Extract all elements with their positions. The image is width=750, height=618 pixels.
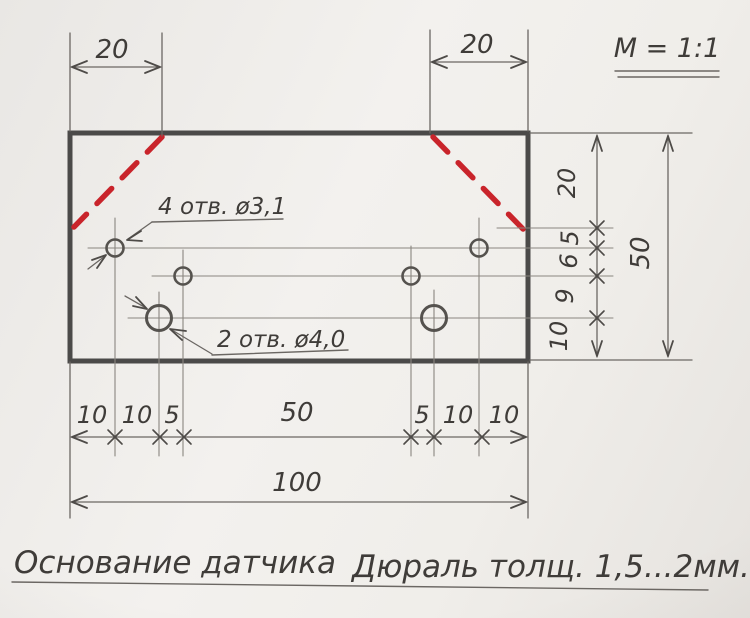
corner-cut-right [433,137,523,229]
dim-value: 100 [272,468,322,498]
dim-value: 20 [95,35,128,65]
dim-value: 20 [460,30,493,60]
leader-arrowhead [127,231,142,241]
dim-value: 5 [164,401,179,429]
dim-value: 20 [553,168,581,199]
title-block: Основание датчика Дюраль толщ. 1,5...2мм… [12,545,750,590]
dim-value: 10 [545,321,573,352]
dim-value: 10 [443,401,474,429]
dim-value: 5 [556,230,584,245]
dim-value: 50 [626,236,656,269]
callout-text: 4 отв. ø3,1 [158,194,286,220]
dim-value: 9 [551,288,579,303]
dim-value: 50 [280,398,313,428]
leader-tail-arrowhead [133,297,147,309]
dim-value: 10 [122,401,153,429]
scale-note: M = 1:1 [614,33,721,77]
leader-arrowhead [170,329,186,340]
dim-value: 10 [77,401,108,429]
dim-value: 10 [489,401,520,429]
technical-drawing: 20 20 M = 1:1 20 5 6 9 10 50 [0,0,750,618]
corner-cut-marks [74,137,523,229]
dim-value: 6 [555,253,583,268]
dim-right-total: 50 [626,135,673,357]
dim-value: 5 [414,401,429,429]
callout-small-holes: 4 отв. ø3,1 [88,194,286,269]
material-note: Дюраль толщ. 1,5...2мм. [350,549,750,585]
dim-top-right: 20 [430,30,528,133]
corner-cut-left [74,137,162,227]
callout-text: 2 отв. ø4,0 [217,327,345,353]
holes [107,240,488,331]
drawing-title: Основание датчика [14,545,336,581]
paper-sheet: 20 20 M = 1:1 20 5 6 9 10 50 [0,0,750,618]
scale-label: M = 1:1 [614,33,721,64]
dim-bottom-total: 100 [71,468,527,508]
leader-tail-arrowhead [92,255,106,268]
leader-line [172,330,212,354]
dim-top-left: 20 [70,33,162,136]
